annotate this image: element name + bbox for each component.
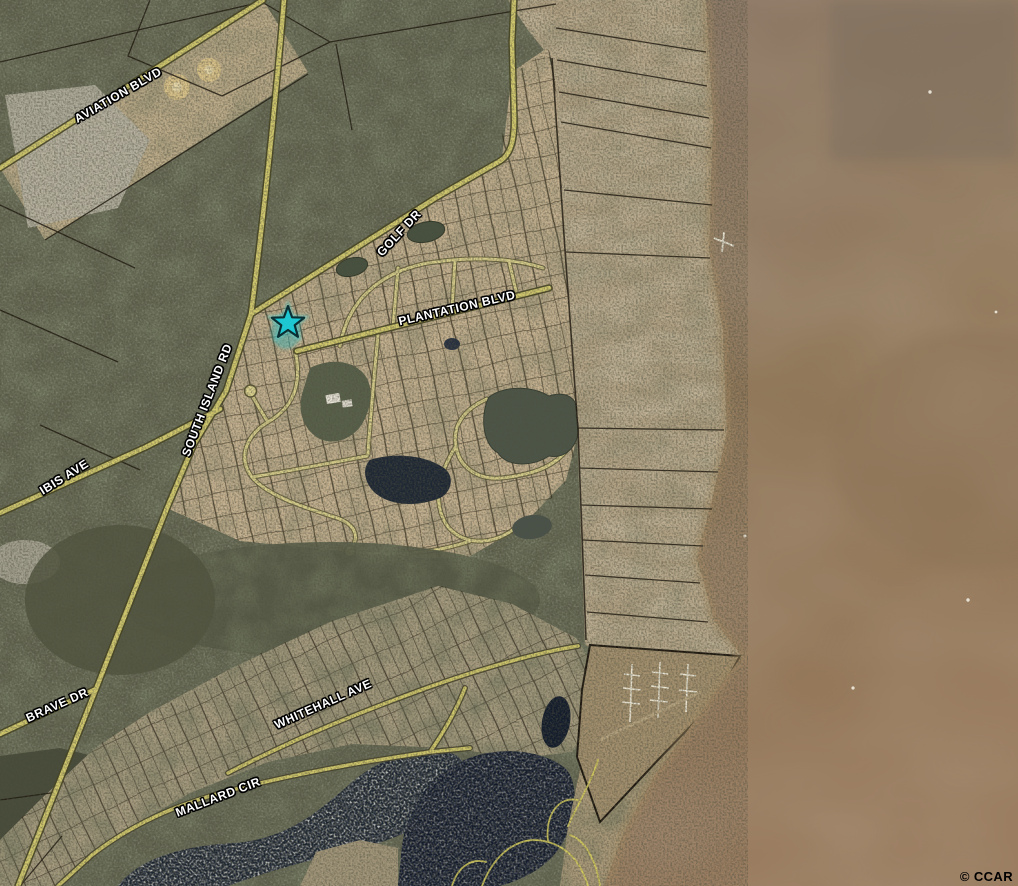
satellite-map-canvas: [0, 0, 1018, 886]
map-viewport[interactable]: AVIATION BLVDGOLF DRPLANTATION BLVDSOUTH…: [0, 0, 1018, 886]
ccar-watermark: © CCAR: [960, 869, 1013, 884]
photo-grain: [0, 0, 748, 886]
